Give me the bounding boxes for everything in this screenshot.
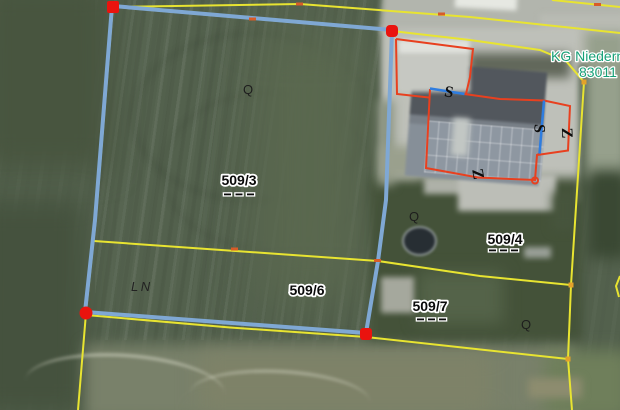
svg-text:Q: Q (521, 317, 531, 332)
svg-text:83011: 83011 (579, 64, 617, 80)
svg-text:509/7: 509/7 (412, 298, 447, 314)
svg-text:509/6: 509/6 (289, 282, 324, 298)
svg-text:S: S (443, 83, 455, 101)
svg-text:Z: Z (468, 167, 487, 180)
svg-text:Z: Z (558, 127, 575, 138)
svg-text:509/4: 509/4 (487, 231, 522, 247)
svg-text:509/3: 509/3 (221, 172, 256, 188)
svg-text:Q: Q (243, 82, 253, 97)
svg-text:S: S (530, 124, 547, 134)
svg-text:KG Niedernha: KG Niedernha (551, 48, 620, 64)
svg-text:Q: Q (409, 209, 419, 224)
svg-text:LN: LN (131, 279, 153, 294)
